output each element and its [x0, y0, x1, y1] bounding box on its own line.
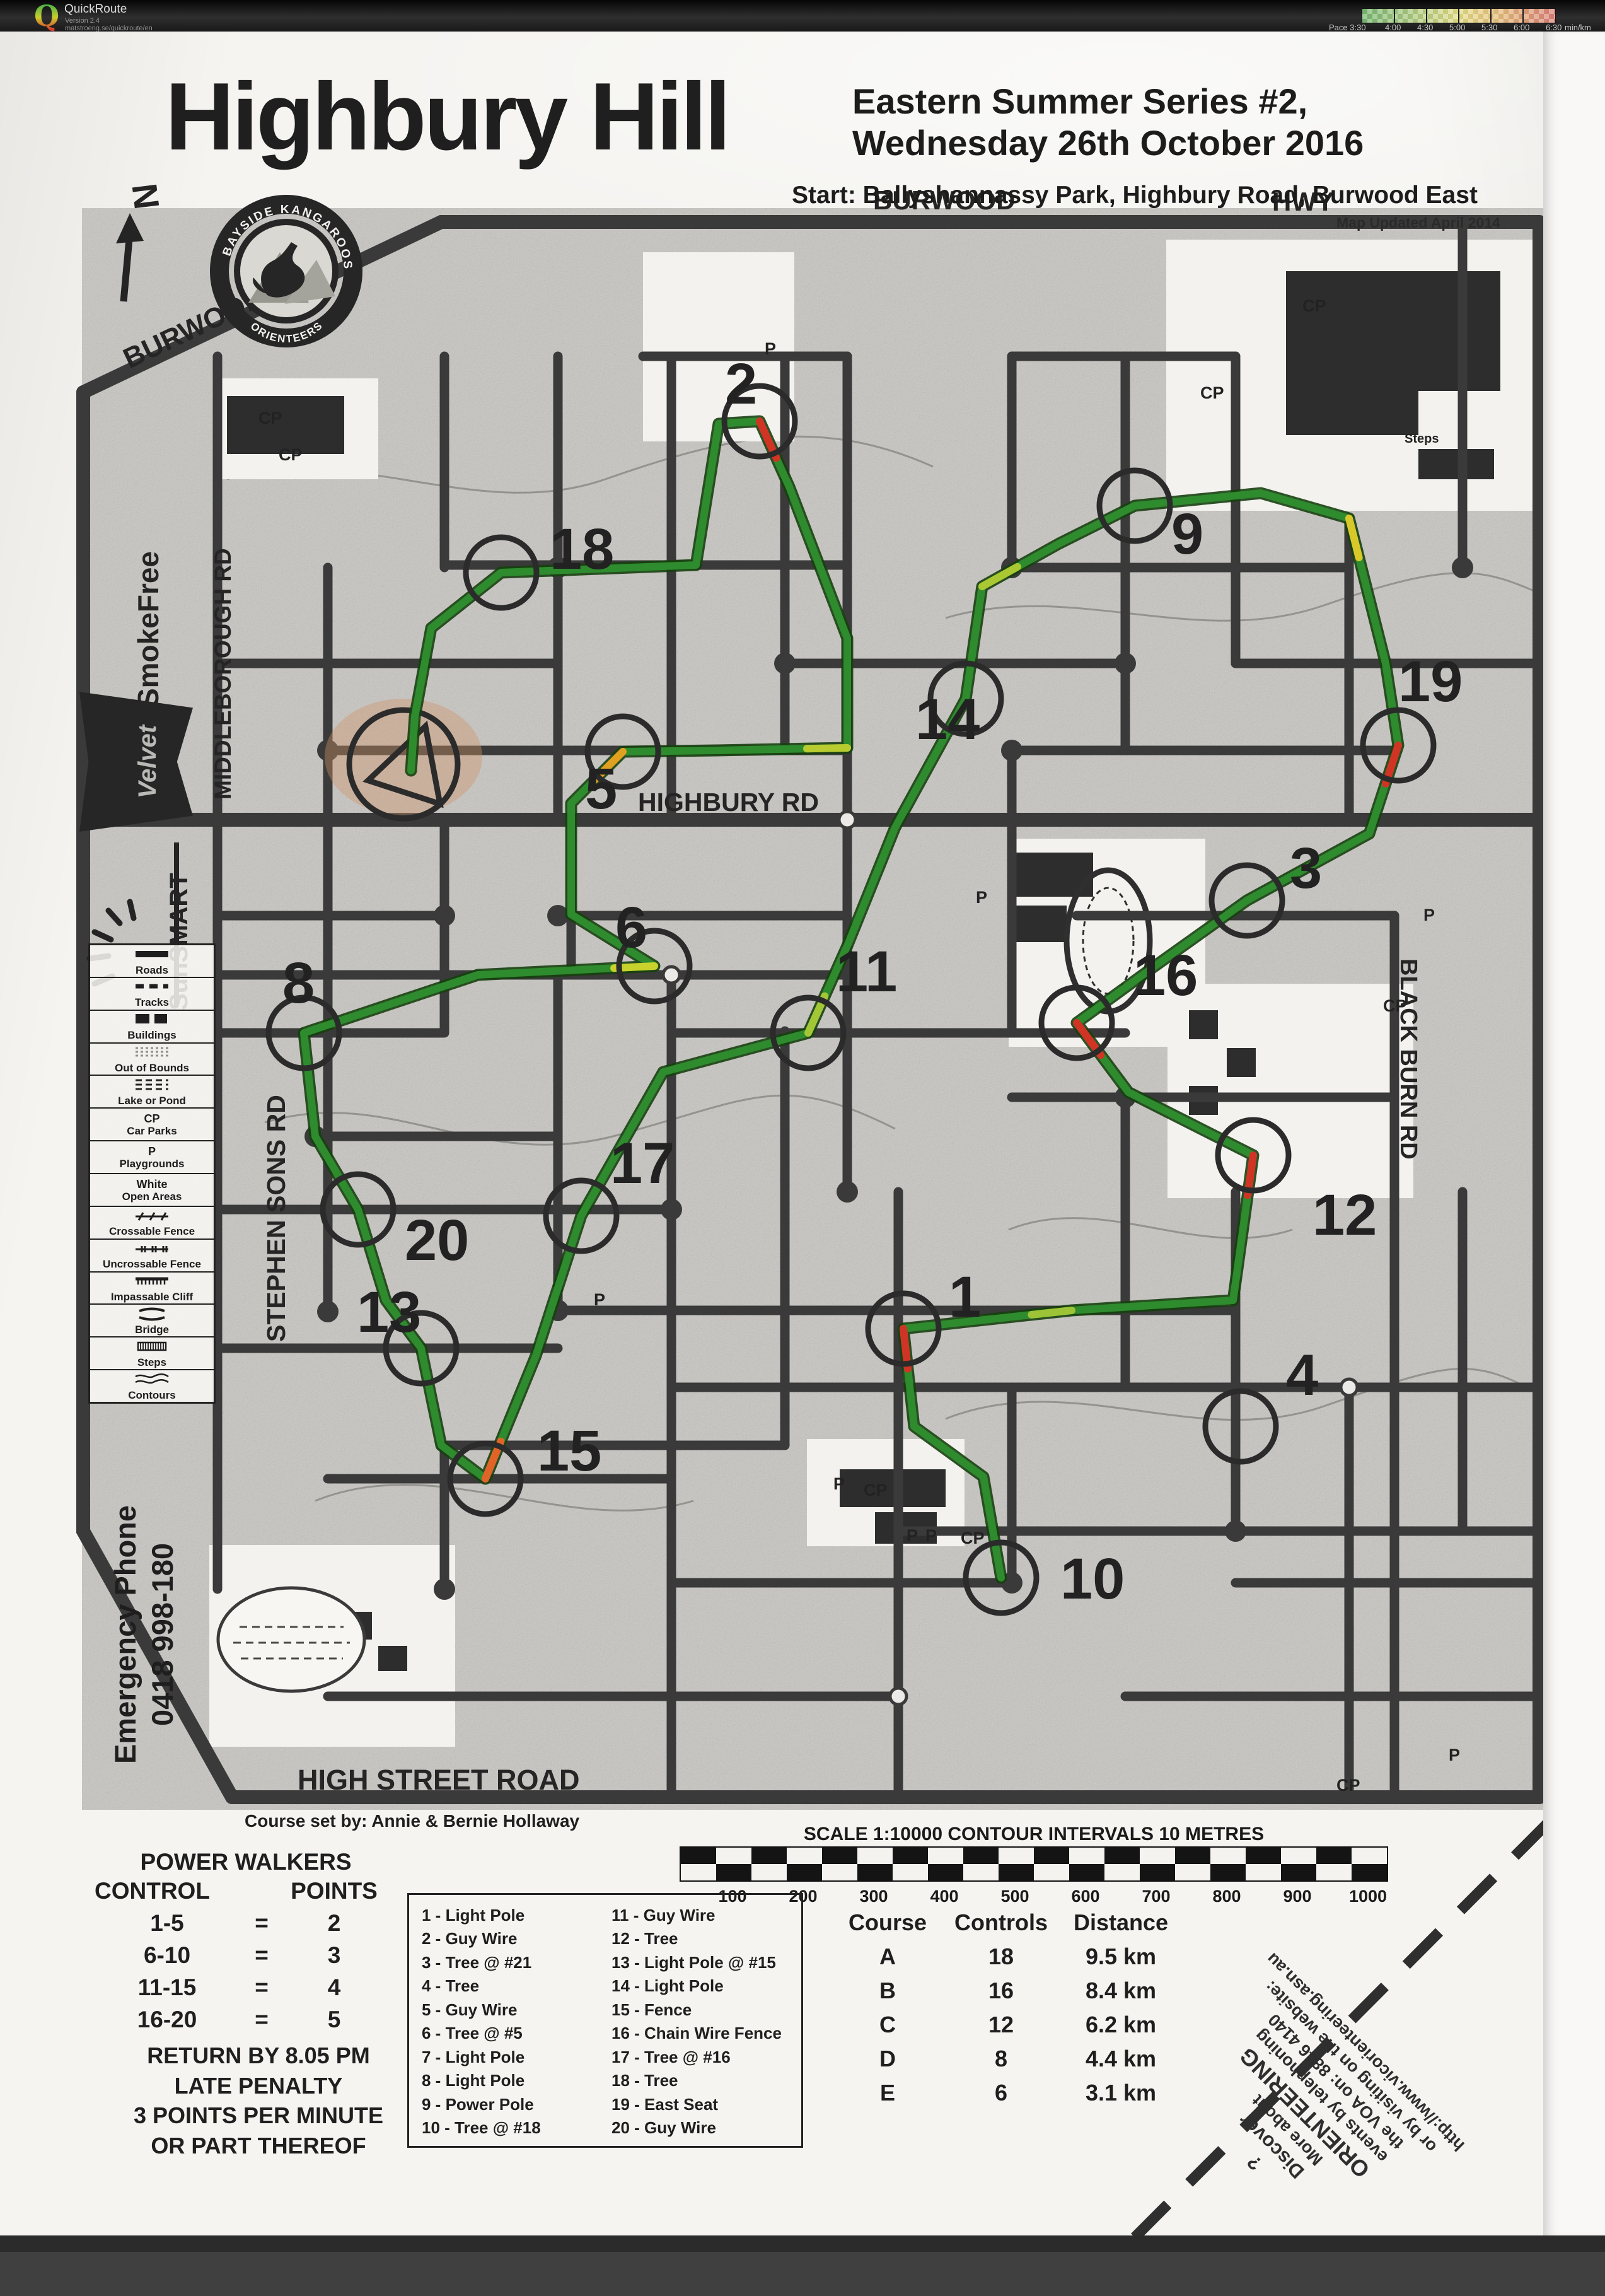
- legend-item: Lake or Pond: [90, 1076, 214, 1109]
- svg-text:BLACK BURN RD: BLACK BURN RD: [1395, 959, 1422, 1160]
- power-walkers-table: POWER WALKERS CONTROL POINTS 1-5=26-10=3…: [95, 1849, 410, 2160]
- event-series: Eastern Summer Series #2, Wednesday 26th…: [852, 81, 1470, 163]
- svg-text:STEPHEN SONS RD: STEPHEN SONS RD: [262, 1095, 291, 1342]
- svg-text:CP: CP: [258, 409, 282, 428]
- control-number: 3: [1290, 836, 1322, 900]
- map-legend: RoadsTracksBuildingsOut of BoundsLake or…: [88, 943, 216, 1404]
- control-number: 17: [610, 1131, 675, 1196]
- control-number: 19: [1398, 650, 1463, 714]
- quickroute-toolbar: Q QuickRoute Version 2.4 matstroeng.se/q…: [0, 0, 1605, 32]
- map-updated-note: Map Updated April 2014: [1336, 214, 1500, 231]
- legend-item: Steps: [90, 1337, 214, 1370]
- control-number: 18: [550, 517, 614, 581]
- svg-text:P: P: [1423, 906, 1435, 924]
- course-setter: Course set by: Annie & Bernie Hollaway: [245, 1811, 579, 1831]
- course-table: CourseControlsDistance A189.5 kmB168.4 k…: [831, 1909, 1184, 2106]
- smokefree-label: SmokeFree: [131, 468, 165, 708]
- map-title: Highbury Hill: [165, 62, 846, 172]
- control-number: 1: [949, 1265, 981, 1329]
- legend-item: Uncrossable Fence: [90, 1240, 214, 1273]
- svg-text:P: P: [976, 888, 987, 907]
- svg-text:P: P: [907, 1526, 918, 1545]
- quickroute-logo-icon: Q: [34, 0, 59, 32]
- legend-item: PPlaygrounds: [90, 1141, 214, 1174]
- pace-gradient-bar: [1362, 8, 1556, 23]
- app-title: QuickRoute: [64, 3, 127, 16]
- control-number: 15: [537, 1419, 601, 1483]
- control-number: 20: [405, 1208, 469, 1273]
- legend-item: Bridge: [90, 1305, 214, 1337]
- legend-item: Tracks: [90, 978, 214, 1011]
- event-start-location: Start: Ballyshannassy Park, Highbury Roa…: [792, 182, 1485, 209]
- velvet-label: Velvet: [134, 692, 162, 831]
- svg-text:CP: CP: [864, 1481, 888, 1500]
- svg-text:HIGH STREET ROAD: HIGH STREET ROAD: [298, 1764, 580, 1796]
- control-number: 5: [585, 757, 617, 821]
- legend-item: Roads: [90, 945, 214, 978]
- control-number: 8: [282, 951, 315, 1015]
- svg-text:P: P: [925, 1526, 937, 1545]
- control-number: 11: [836, 940, 897, 1004]
- legend-item: Contours: [90, 1370, 214, 1402]
- legend-item: Out of Bounds: [90, 1044, 214, 1076]
- control-number: 4: [1286, 1343, 1318, 1407]
- emergency-phone: Emergency Phone 0418 998-180: [107, 1433, 182, 1836]
- control-descriptions: 1 - Light Pole2 - Guy Wire3 - Tree @ #21…: [407, 1893, 803, 2148]
- svg-text:CP: CP: [1200, 383, 1224, 402]
- pond: [218, 1588, 364, 1691]
- legend-item: Impassable Cliff: [90, 1273, 214, 1305]
- control-number: 2: [725, 352, 757, 416]
- paper-right-margin: [1543, 32, 1605, 2235]
- svg-text:N: N: [125, 181, 167, 211]
- app-url: matstroeng.se/quickroute/en: [65, 25, 153, 32]
- control-number: 10: [1060, 1547, 1125, 1611]
- control-number: 13: [357, 1280, 421, 1344]
- control-number: 16: [1133, 943, 1198, 1008]
- control-number: 14: [915, 687, 980, 752]
- scale-bar: [680, 1846, 1388, 1882]
- app-version: Version 2.4: [65, 17, 100, 25]
- legend-item: Buildings: [90, 1011, 214, 1044]
- control-number: 6: [615, 895, 647, 960]
- svg-text:HIGHBURY RD: HIGHBURY RD: [638, 788, 819, 817]
- svg-text:P: P: [594, 1290, 605, 1309]
- svg-text:CP: CP: [279, 445, 303, 464]
- svg-text:CP: CP: [1336, 1776, 1360, 1795]
- svg-text:CP: CP: [961, 1529, 985, 1547]
- photo-bottom-edge: [0, 2235, 1605, 2252]
- svg-text:P: P: [833, 1474, 845, 1493]
- control-number: 12: [1312, 1183, 1377, 1247]
- svg-text:P: P: [1449, 1745, 1460, 1764]
- scale-title: SCALE 1:10000 CONTOUR INTERVALS 10 METRE…: [681, 1824, 1387, 1845]
- control-number: 9: [1171, 502, 1203, 566]
- svg-text:CP: CP: [1302, 296, 1326, 315]
- legend-item: WhiteOpen Areas: [90, 1174, 214, 1207]
- pace-scale-labels: Pace 3:304:004:305:005:306:006:30min/km: [1362, 23, 1601, 32]
- svg-text:Steps: Steps: [1405, 432, 1439, 446]
- svg-text:P: P: [765, 339, 776, 358]
- legend-item: CPCar Parks: [90, 1109, 214, 1141]
- svg-text:MIDDLEBOROUGH RD: MIDDLEBOROUGH RD: [210, 548, 236, 800]
- legend-item: Crossable Fence: [90, 1207, 214, 1240]
